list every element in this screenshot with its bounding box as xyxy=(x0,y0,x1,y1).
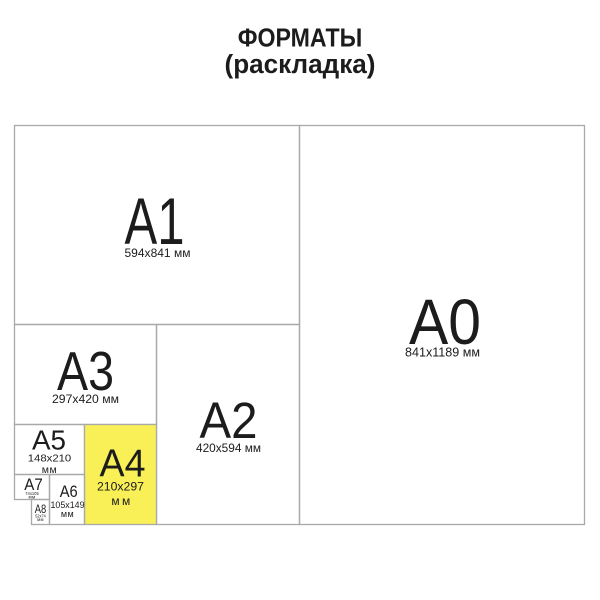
svg-text:мм: мм xyxy=(37,517,44,522)
svg-text:841x1189 мм: 841x1189 мм xyxy=(405,345,480,359)
svg-text:594x841 мм: 594x841 мм xyxy=(125,246,191,260)
svg-text:мм: мм xyxy=(42,464,57,476)
svg-text:420x594 мм: 420x594 мм xyxy=(196,441,261,455)
svg-text:ФОРМАТЫ: ФОРМАТЫ xyxy=(238,24,363,52)
svg-text:мм: мм xyxy=(29,495,36,500)
svg-text:297x420 мм: 297x420 мм xyxy=(52,392,119,406)
svg-text:мм: мм xyxy=(61,509,74,519)
svg-text:мм: мм xyxy=(111,494,132,508)
svg-text:A6: A6 xyxy=(60,483,78,501)
svg-text:(раскладка): (раскладка) xyxy=(225,51,376,79)
svg-text:148x210: 148x210 xyxy=(28,453,72,465)
svg-text:A5: A5 xyxy=(32,425,66,456)
svg-text:A4: A4 xyxy=(100,442,146,485)
svg-text:210x297: 210x297 xyxy=(97,482,144,494)
